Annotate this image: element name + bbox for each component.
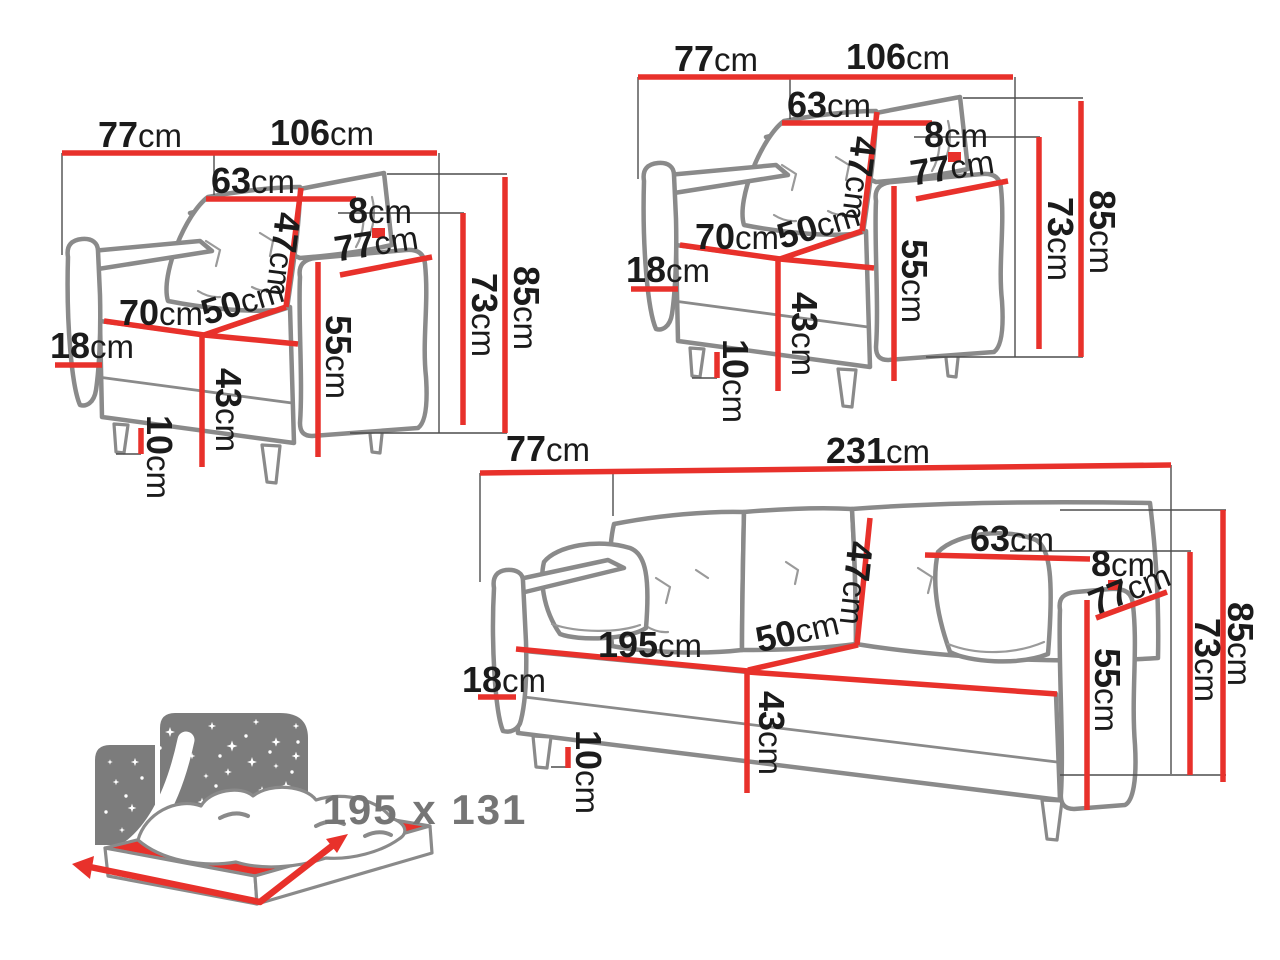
furniture-dimensions-sheet: 77cm 106cm 63cm 8cm 77cm 47cm 70cm 50cm … [0, 0, 1280, 960]
armchair-left-total-width-label: 106cm [270, 112, 374, 153]
armchair-right-backrest-height-label: 73cm [1040, 197, 1081, 281]
armchair-left-base-height-label: 18cm [50, 325, 134, 366]
armchair-right-back-width-label: 77cm [674, 38, 758, 79]
sofa-diagram: 77cm 231cm 63cm 8cm 77cm 47cm 195cm 50cm… [450, 430, 1280, 880]
armchair-right-arm-height-label: 55cm [894, 239, 935, 323]
sofa-leg-height-label: 10cm [568, 730, 609, 814]
sofa-total-width-label: 231cm [826, 430, 930, 471]
sofa-arm-height-label: 55cm [1087, 648, 1128, 732]
armchair-right-cushion-width-label: 63cm [787, 84, 871, 125]
sofa-seat-height-label: 43cm [751, 691, 792, 775]
armchair-right-seat-height-label: 43cm [784, 292, 825, 376]
armchair-left-back-width-label: 77cm [98, 114, 182, 155]
armchair-right-base-height-label: 18cm [626, 249, 710, 290]
armchair-right-leg-height-label: 10cm [715, 339, 756, 423]
armchair-left-leg-height-label: 10cm [139, 415, 180, 499]
armchair-left-seat-height-label: 43cm [208, 368, 249, 452]
armchair-diagram-right: 77cm 106cm 63cm 8cm 77cm 47cm 70cm 50cm … [616, 19, 1126, 449]
armchair-right-seat-width-label: 70cm [695, 216, 779, 257]
armchair-left-seat-width-label: 70cm [119, 292, 203, 333]
armchair-left-backrest-height-label: 73cm [464, 273, 505, 357]
sofa-seat-width-label: 195cm [598, 624, 702, 665]
sofa-total-height-label: 85cm [1220, 602, 1261, 686]
sofa-back-width-label: 77cm [506, 428, 590, 469]
armchair-right-total-height-label: 85cm [1082, 190, 1123, 274]
sleeping-size-label: 195 x 131 [323, 786, 528, 833]
sleeping-function-icon: 195 x 131 [60, 690, 530, 950]
armchair-left-arm-height-label: 55cm [318, 315, 359, 399]
armchair-right-total-width-label: 106cm [846, 36, 950, 77]
armchair-left-cushion-width-label: 63cm [211, 160, 295, 201]
sofa-cushion-width-label: 63cm [970, 518, 1054, 559]
armchair-left-total-height-label: 85cm [506, 266, 547, 350]
